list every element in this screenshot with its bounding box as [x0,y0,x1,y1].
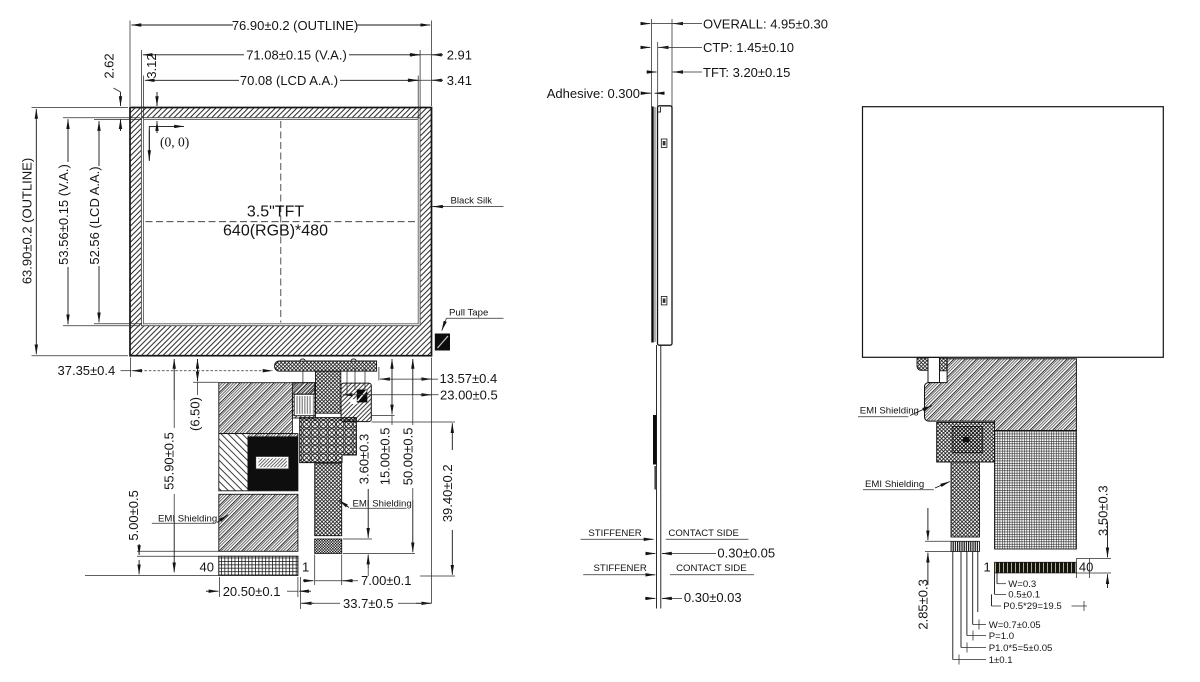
svg-text:CONTACT SIDE: CONTACT SIDE [668,528,739,539]
svg-text:2.91: 2.91 [447,48,472,63]
svg-text:55.90±0.5: 55.90±0.5 [162,432,177,490]
svg-text:50.00±0.5: 50.00±0.5 [401,428,416,486]
svg-text:13.57±0.4: 13.57±0.4 [440,371,498,386]
svg-text:3.50±0.3: 3.50±0.3 [1095,485,1110,536]
svg-text:P0.5*29=19.5: P0.5*29=19.5 [1003,601,1061,612]
svg-text:1: 1 [302,560,309,575]
svg-text:40: 40 [1079,559,1093,574]
svg-text:3.60±0.3: 3.60±0.3 [356,434,371,485]
svg-text:20.50±0.1: 20.50±0.1 [223,584,281,599]
svg-text:63.90±0.2 (OUTLINE): 63.90±0.2 (OUTLINE) [20,158,35,284]
svg-text:39.40±0.2: 39.40±0.2 [440,464,455,522]
svg-text:0.30±0.05: 0.30±0.05 [717,545,775,560]
svg-text:(0, 0): (0, 0) [160,135,189,150]
svg-text:EMI Shielding: EMI Shielding [353,498,412,509]
svg-text:70.08 (LCD A.A.): 70.08 (LCD A.A.) [240,73,338,88]
svg-text:0.5±0.1: 0.5±0.1 [1008,590,1040,601]
svg-text:3.12: 3.12 [144,53,159,78]
svg-text:71.08±0.15 (V.A.): 71.08±0.15 (V.A.) [246,48,347,63]
svg-text:EMI Shielding: EMI Shielding [158,513,217,524]
svg-text:W=0.7±0.05: W=0.7±0.05 [989,620,1041,631]
svg-text:52.56 (LCD A.A.): 52.56 (LCD A.A.) [87,166,102,264]
svg-text:15.00±0.5: 15.00±0.5 [378,428,393,486]
svg-text:STIFFENER: STIFFENER [594,563,647,574]
svg-text:OVERALL: 4.95±0.30: OVERALL: 4.95±0.30 [703,16,828,31]
svg-text:P=1.0: P=1.0 [989,631,1014,642]
svg-text:Adhesive: 0.300: Adhesive: 0.300 [547,86,640,101]
svg-text:P1.0*5=5±0.05: P1.0*5=5±0.05 [989,643,1053,654]
svg-text:3.41: 3.41 [447,73,472,88]
svg-text:5.00±0.5: 5.00±0.5 [126,490,141,541]
svg-text:76.90±0.2 (OUTLINE): 76.90±0.2 (OUTLINE) [232,18,358,33]
svg-text:TFT: 3.20±0.15: TFT: 3.20±0.15 [703,65,790,80]
svg-text:53.56±0.15 (V.A.): 53.56±0.15 (V.A.) [56,164,71,265]
svg-text:33.7±0.5: 33.7±0.5 [343,596,394,611]
svg-text:23.00±0.5: 23.00±0.5 [440,387,498,402]
svg-text:2.62: 2.62 [102,53,117,78]
svg-text:1±0.1: 1±0.1 [989,655,1013,666]
svg-text:STIFFENER: STIFFENER [588,528,641,539]
svg-text:Pull Tape: Pull Tape [449,308,488,319]
svg-text:W=0.3: W=0.3 [1008,579,1036,590]
svg-text:7.00±0.1: 7.00±0.1 [361,573,412,588]
svg-text:EMI Shielding: EMI Shielding [865,479,924,490]
svg-text:CONTACT SIDE: CONTACT SIDE [676,563,747,574]
svg-text:Black Silk: Black Silk [451,196,493,207]
svg-text:37.35±0.4: 37.35±0.4 [58,363,116,378]
svg-text:640(RGB)*480: 640(RGB)*480 [223,222,328,239]
svg-text:0.30±0.03: 0.30±0.03 [684,590,742,605]
svg-text:(6.50): (6.50) [187,397,202,431]
svg-text:3.5"TFT: 3.5"TFT [247,203,304,220]
svg-text:40: 40 [200,560,214,575]
svg-text:1: 1 [984,559,991,574]
svg-text:2.85±0.3: 2.85±0.3 [916,579,931,630]
svg-text:CTP: 1.45±0.10: CTP: 1.45±0.10 [703,40,794,55]
